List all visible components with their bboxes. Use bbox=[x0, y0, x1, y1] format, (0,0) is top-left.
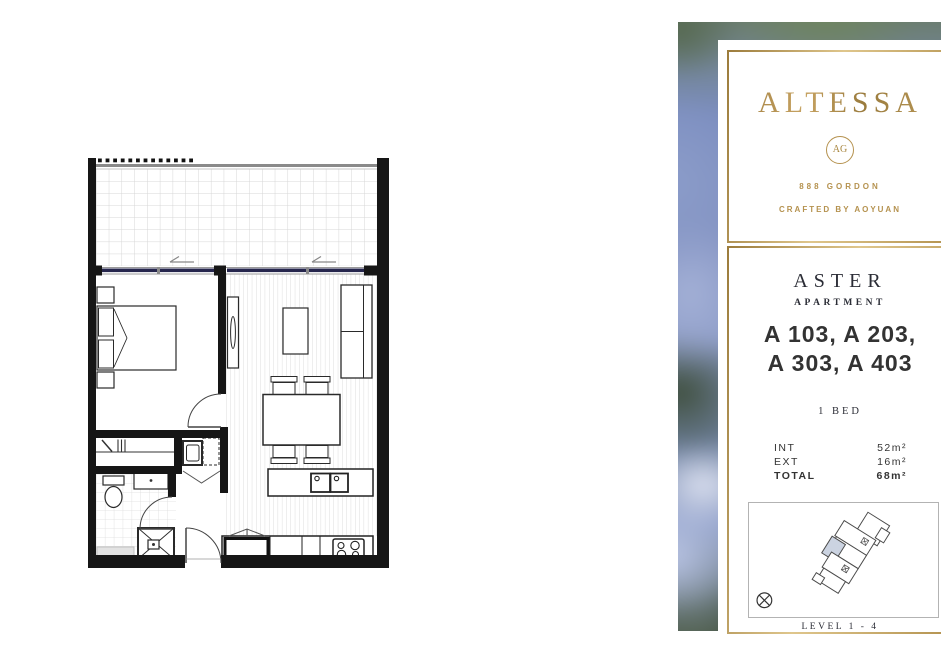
balcony-edge bbox=[96, 159, 377, 170]
ag-monogram-icon: AG bbox=[826, 136, 854, 164]
level-label: LEVEL 1 - 4 bbox=[718, 622, 941, 632]
area-value: 68m² bbox=[876, 469, 907, 483]
siteplan-keyplan bbox=[748, 502, 939, 618]
bedroom-door bbox=[188, 394, 221, 427]
area-label: INT bbox=[774, 441, 795, 455]
brand-tagline: CRAFTED BY AOYUAN bbox=[718, 205, 941, 214]
sink bbox=[311, 474, 330, 493]
wardrobe bbox=[96, 440, 174, 453]
area-value: 16m² bbox=[877, 455, 907, 469]
brochure-page: { "brand": { "name": "ALTESSA", "monogra… bbox=[0, 0, 941, 656]
unit-numbers-line1: A 103, A 203, bbox=[718, 321, 941, 348]
apartment-type-label: APARTMENT bbox=[718, 298, 941, 308]
building-footprint bbox=[807, 503, 893, 601]
entry-door bbox=[186, 528, 221, 563]
area-value: 52m² bbox=[877, 441, 907, 455]
area-row-int: INT 52m² bbox=[774, 441, 907, 455]
laundry bbox=[183, 438, 220, 483]
balcony-floor bbox=[96, 169, 377, 266]
toilet bbox=[103, 476, 124, 508]
dryer bbox=[203, 438, 219, 465]
area-label: TOTAL bbox=[774, 469, 816, 483]
kitchen-island bbox=[268, 469, 373, 496]
nightstand bbox=[97, 372, 114, 388]
coffee-table bbox=[283, 308, 308, 354]
bedroom-furniture bbox=[97, 287, 176, 388]
shower bbox=[138, 528, 174, 559]
compass-icon bbox=[757, 593, 772, 608]
siteplan-drawing bbox=[749, 503, 936, 615]
nightstand bbox=[97, 287, 114, 303]
sofa bbox=[341, 285, 372, 378]
area-label: EXT bbox=[774, 455, 799, 469]
brand-address: 888 GORDON bbox=[718, 182, 941, 191]
louvre-dots bbox=[98, 159, 193, 163]
apartment-name: ASTER bbox=[718, 270, 941, 293]
area-row-ext: EXT 16m² bbox=[774, 455, 907, 469]
info-card: ALTESSA AG 888 GORDON CRAFTED BY AOYUAN … bbox=[718, 40, 941, 634]
floor-plan bbox=[85, 155, 395, 570]
bedroom-count-label: 1 BED bbox=[718, 406, 941, 417]
brand-logo: ALTESSA bbox=[718, 86, 941, 120]
area-table: INT 52m² EXT 16m² TOTAL 68m² bbox=[774, 441, 907, 483]
unit-numbers-line2: A 303, A 403 bbox=[718, 350, 941, 377]
area-row-total: TOTAL 68m² bbox=[774, 469, 907, 483]
